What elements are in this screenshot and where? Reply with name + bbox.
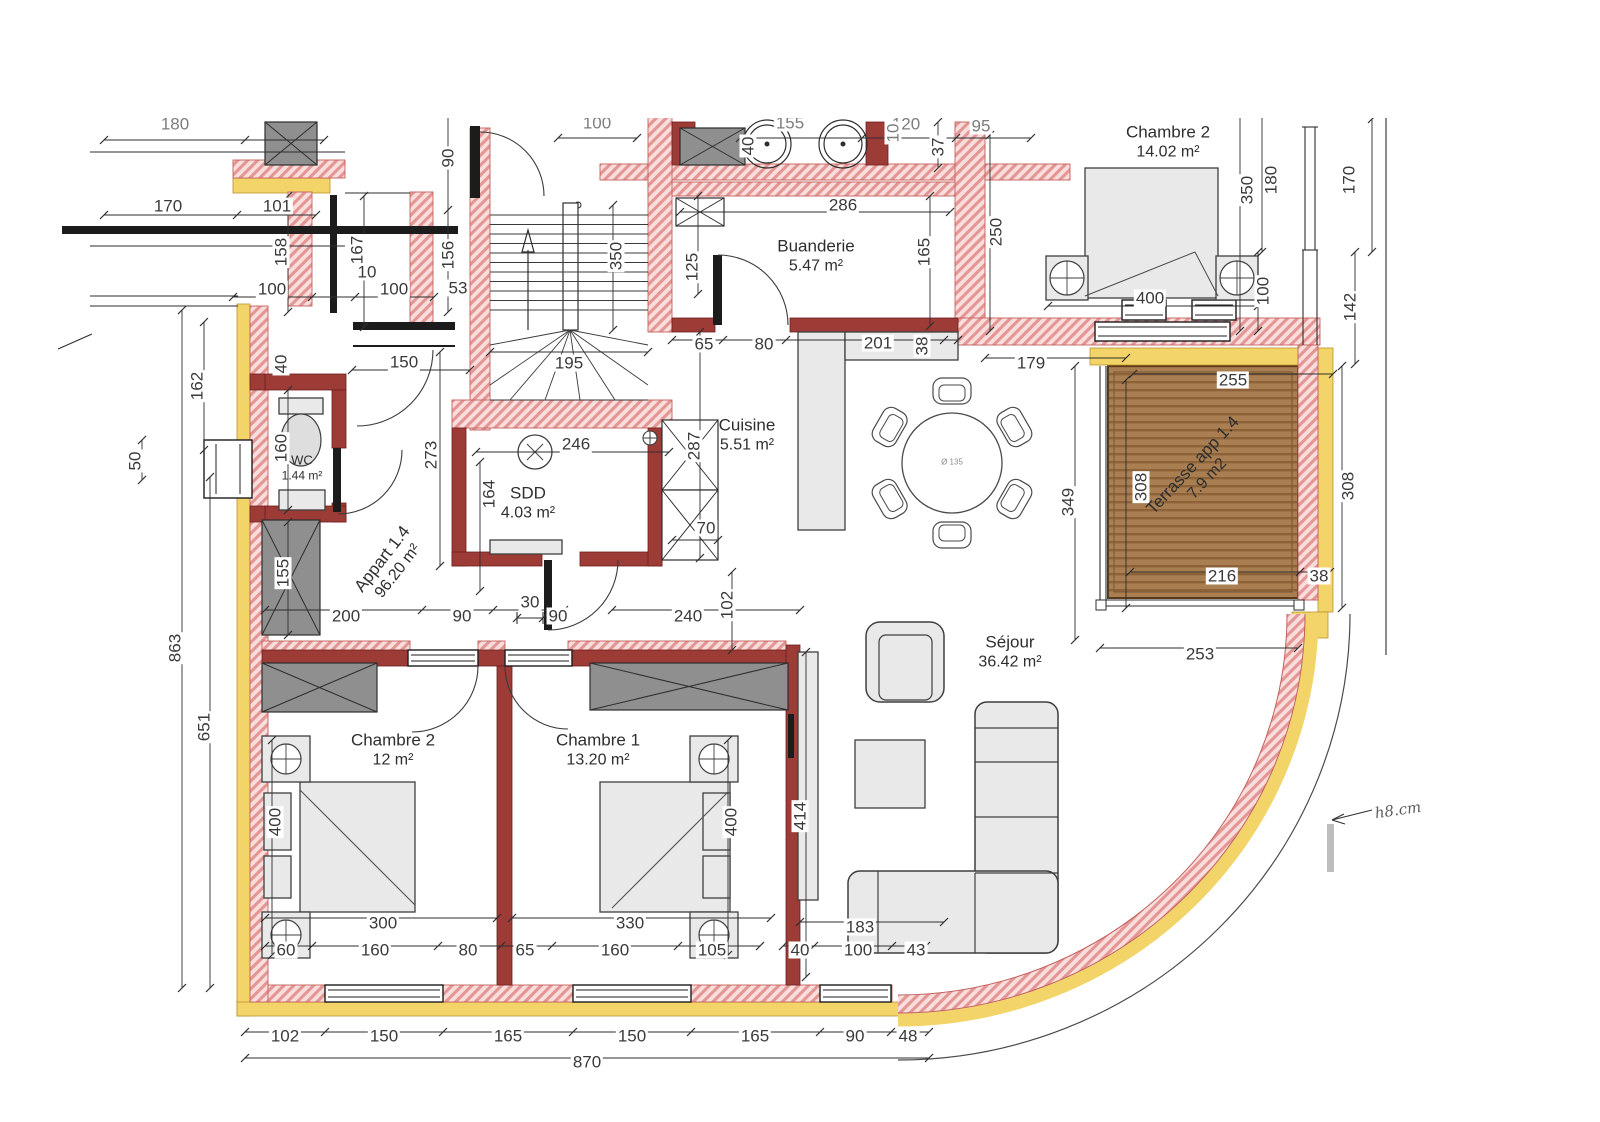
dimension-label: 180 bbox=[1263, 164, 1280, 196]
dimension-label: 40 bbox=[740, 135, 757, 158]
dimension-label: 100 bbox=[378, 281, 410, 298]
room-area: 4.03 m² bbox=[501, 504, 555, 524]
dimension-label: 350 bbox=[608, 240, 625, 272]
dimension-label: 90 bbox=[844, 1028, 867, 1045]
dimension-label: 165 bbox=[492, 1028, 524, 1045]
dimension-label: 651 bbox=[196, 711, 213, 743]
room-area: 36.42 m² bbox=[978, 653, 1041, 673]
dimension-label: 300 bbox=[367, 915, 399, 932]
room-name: Buanderie bbox=[777, 235, 855, 256]
room-name: Séjour bbox=[978, 631, 1041, 652]
dimension-label: 50 bbox=[127, 450, 144, 473]
room-label: Chambre 214.02 m² bbox=[1126, 121, 1210, 162]
room-label: WC1.44 m² bbox=[282, 452, 323, 483]
dimension-label: 870 bbox=[571, 1054, 603, 1071]
dimension-label: 158 bbox=[273, 236, 290, 268]
room-area: 12 m² bbox=[351, 751, 435, 771]
room-name: SDD bbox=[501, 482, 555, 503]
dimension-label: 80 bbox=[457, 942, 480, 959]
room-name: Chambre 2 bbox=[351, 729, 435, 750]
room-area: 1.44 m² bbox=[282, 469, 323, 484]
dimension-label: 253 bbox=[1184, 646, 1216, 663]
plan-labels: Chambre 214.02 m²Buanderie5.47 m²Cuisine… bbox=[0, 0, 1600, 1122]
room-name: Chambre 2 bbox=[1126, 121, 1210, 142]
floor-plan-page: Chambre 214.02 m²Buanderie5.47 m²Cuisine… bbox=[0, 0, 1600, 1122]
dimension-label: 165 bbox=[916, 236, 933, 268]
dimension-label: 37 bbox=[930, 136, 947, 159]
dimension-label: 40 bbox=[789, 942, 812, 959]
dimension-label: 246 bbox=[560, 436, 592, 453]
dimension-label: 70 bbox=[695, 520, 718, 537]
dimension-label: 142 bbox=[1342, 291, 1359, 323]
dimension-label: 286 bbox=[827, 197, 859, 214]
room-label: Appart 1.496.20 m² bbox=[350, 521, 431, 608]
room-label: Séjour36.42 m² bbox=[978, 631, 1041, 672]
dimension-label: 200 bbox=[330, 608, 362, 625]
dimension-label: 10 bbox=[885, 122, 902, 145]
dimension-label: 255 bbox=[1217, 372, 1249, 389]
dimension-label: 150 bbox=[368, 1028, 400, 1045]
dimension-label: 400 bbox=[723, 806, 740, 838]
room-area: 5.51 m² bbox=[719, 436, 776, 456]
dimension-label: 101 bbox=[261, 198, 293, 215]
top-crop-mask bbox=[0, 0, 1600, 118]
dimension-label: 90 bbox=[440, 147, 457, 170]
dimension-label: 38 bbox=[914, 335, 931, 358]
dimension-label: 195 bbox=[553, 355, 585, 372]
room-label: Chambre 113.20 m² bbox=[556, 729, 640, 770]
dimension-label: 273 bbox=[423, 439, 440, 471]
dimension-label: 350 bbox=[1239, 174, 1256, 206]
dimension-label: 65 bbox=[693, 336, 716, 353]
dimension-label: 150 bbox=[388, 354, 420, 371]
dimension-label: 53 bbox=[447, 280, 470, 297]
dimension-label: 183 bbox=[844, 919, 876, 936]
dimension-label: 48 bbox=[897, 1028, 920, 1045]
room-label: Chambre 212 m² bbox=[351, 729, 435, 770]
dimension-label: 10 bbox=[356, 264, 379, 281]
room-name: Chambre 1 bbox=[556, 729, 640, 750]
dimension-label: 38 bbox=[1308, 568, 1331, 585]
dimension-label: 201 bbox=[862, 335, 894, 352]
dimension-label: 349 bbox=[1060, 486, 1077, 518]
dimension-label: 100 bbox=[842, 942, 874, 959]
dimension-label: 170 bbox=[152, 198, 184, 215]
dimension-label: 170 bbox=[1341, 164, 1358, 196]
dimension-label: 308 bbox=[1340, 470, 1357, 502]
dimension-label: 102 bbox=[269, 1028, 301, 1045]
dimension-label: 125 bbox=[684, 251, 701, 283]
dimension-label: 180 bbox=[159, 116, 191, 133]
room-area: 5.47 m² bbox=[777, 257, 855, 277]
room-name: WC bbox=[282, 452, 323, 468]
dimension-label: 287 bbox=[686, 430, 703, 462]
dimension-label: 90 bbox=[547, 608, 570, 625]
dimension-label: 160 bbox=[359, 942, 391, 959]
dimension-label: 330 bbox=[614, 915, 646, 932]
dimension-label: 160 bbox=[599, 942, 631, 959]
dimension-label: 400 bbox=[1134, 290, 1166, 307]
dimension-label: 162 bbox=[189, 370, 206, 402]
dimension-label: 90 bbox=[451, 608, 474, 625]
dimension-label: 250 bbox=[988, 216, 1005, 248]
dimension-label: 40 bbox=[273, 353, 290, 376]
dimension-label: 165 bbox=[739, 1028, 771, 1045]
room-area: 14.02 m² bbox=[1126, 143, 1210, 163]
dimension-label: 400 bbox=[267, 806, 284, 838]
dimension-label: 164 bbox=[481, 478, 498, 510]
dimension-label: 60 bbox=[275, 942, 298, 959]
dimension-label: 150 bbox=[616, 1028, 648, 1045]
dimension-label: 30 bbox=[519, 594, 542, 611]
dimension-label: 95 bbox=[970, 118, 993, 135]
dimension-label: 216 bbox=[1206, 568, 1238, 585]
room-label: SDD4.03 m² bbox=[501, 482, 555, 523]
room-label: Terrasse app 1.47.9 m2 bbox=[1142, 412, 1259, 533]
dimension-label: 100 bbox=[1255, 275, 1272, 307]
handwritten-note: h8.cm bbox=[1374, 798, 1423, 822]
dimension-label: 414 bbox=[792, 800, 809, 832]
dimension-label: 43 bbox=[905, 942, 928, 959]
room-name: Cuisine bbox=[719, 414, 776, 435]
dimension-label: 863 bbox=[167, 632, 184, 664]
table-diameter-note: Ø 135 bbox=[941, 458, 963, 467]
dimension-label: 155 bbox=[275, 557, 292, 589]
dimension-label: 105 bbox=[696, 942, 728, 959]
dimension-label: 156 bbox=[440, 239, 457, 271]
dimension-label: 102 bbox=[719, 589, 736, 621]
dimension-label: 179 bbox=[1015, 355, 1047, 372]
dimension-label: 240 bbox=[672, 608, 704, 625]
room-area: 13.20 m² bbox=[556, 751, 640, 771]
dimension-label: 100 bbox=[256, 281, 288, 298]
dimension-label: 65 bbox=[514, 942, 537, 959]
dimension-label: 167 bbox=[349, 234, 366, 266]
dimension-label: 80 bbox=[753, 336, 776, 353]
room-label: Buanderie5.47 m² bbox=[777, 235, 855, 276]
room-label: Cuisine5.51 m² bbox=[719, 414, 776, 455]
